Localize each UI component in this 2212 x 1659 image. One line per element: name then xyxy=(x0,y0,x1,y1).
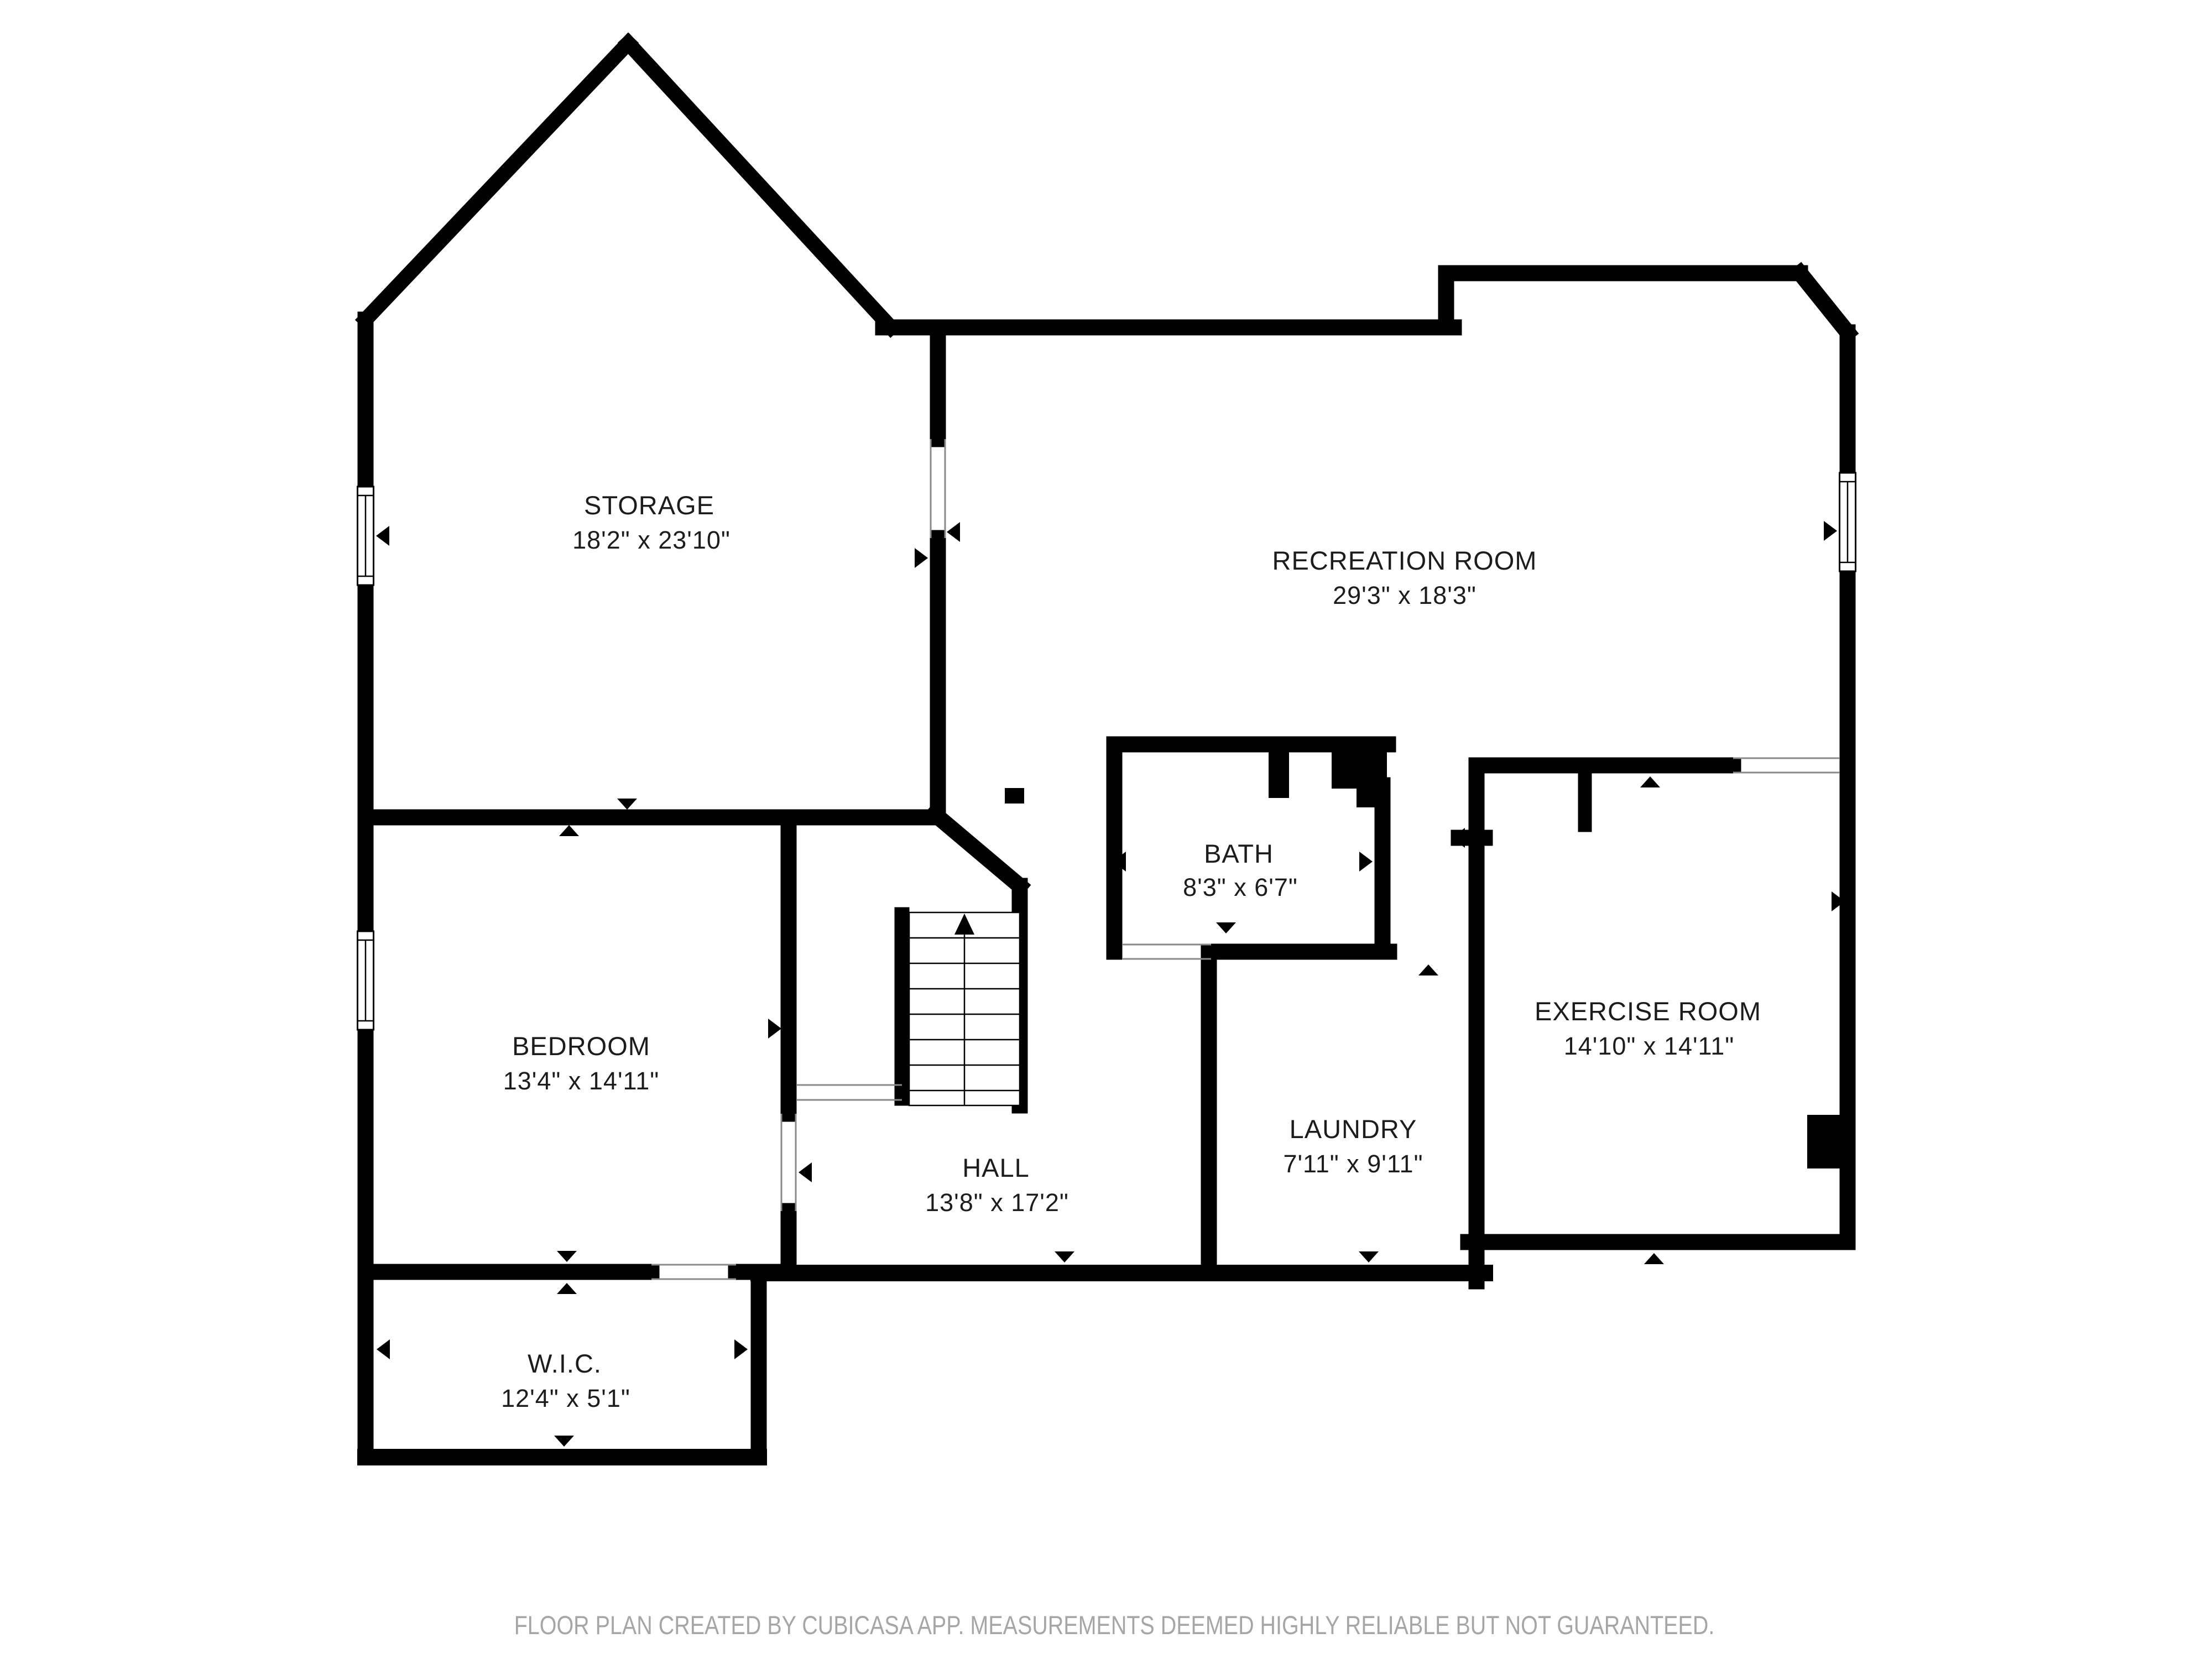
svg-text:W.I.C.: W.I.C. xyxy=(528,1349,602,1378)
svg-text:8'3" x 6'7": 8'3" x 6'7" xyxy=(1183,873,1298,901)
window-bedroom xyxy=(358,931,374,1030)
svg-text:BEDROOM: BEDROOM xyxy=(512,1031,650,1061)
footer: FLOOR PLAN CREATED BY CUBICASA APP. MEAS… xyxy=(514,1611,1715,1640)
svg-text:RECREATION ROOM: RECREATION ROOM xyxy=(1272,546,1537,575)
floor-plan-canvas: STORAGE 18'2" x 23'10" RECREATION ROOM 2… xyxy=(0,0,2212,1659)
svg-text:13'8" x 17'2": 13'8" x 17'2" xyxy=(925,1188,1069,1217)
svg-text:14'10" x 14'11": 14'10" x 14'11" xyxy=(1564,1032,1735,1060)
svg-text:HALL: HALL xyxy=(962,1153,1030,1182)
staircase xyxy=(909,912,1020,1105)
svg-text:18'2" x 23'10": 18'2" x 23'10" xyxy=(572,526,731,554)
svg-text:29'3" x 18'3": 29'3" x 18'3" xyxy=(1333,581,1477,609)
svg-text:LAUNDRY: LAUNDRY xyxy=(1290,1114,1417,1144)
svg-text:BATH: BATH xyxy=(1204,839,1274,868)
window-recreation xyxy=(1840,473,1856,571)
svg-text:STORAGE: STORAGE xyxy=(584,491,714,520)
plan-background xyxy=(0,0,2212,1659)
footer-disclaimer: FLOOR PLAN CREATED BY CUBICASA APP. MEAS… xyxy=(514,1611,1715,1640)
svg-text:13'4" x 14'11": 13'4" x 14'11" xyxy=(503,1067,659,1095)
window-storage xyxy=(358,487,374,585)
svg-text:7'11" x 9'11": 7'11" x 9'11" xyxy=(1283,1150,1423,1178)
svg-text:12'4" x 5'1": 12'4" x 5'1" xyxy=(501,1384,630,1412)
svg-text:EXERCISE ROOM: EXERCISE ROOM xyxy=(1535,997,1761,1026)
